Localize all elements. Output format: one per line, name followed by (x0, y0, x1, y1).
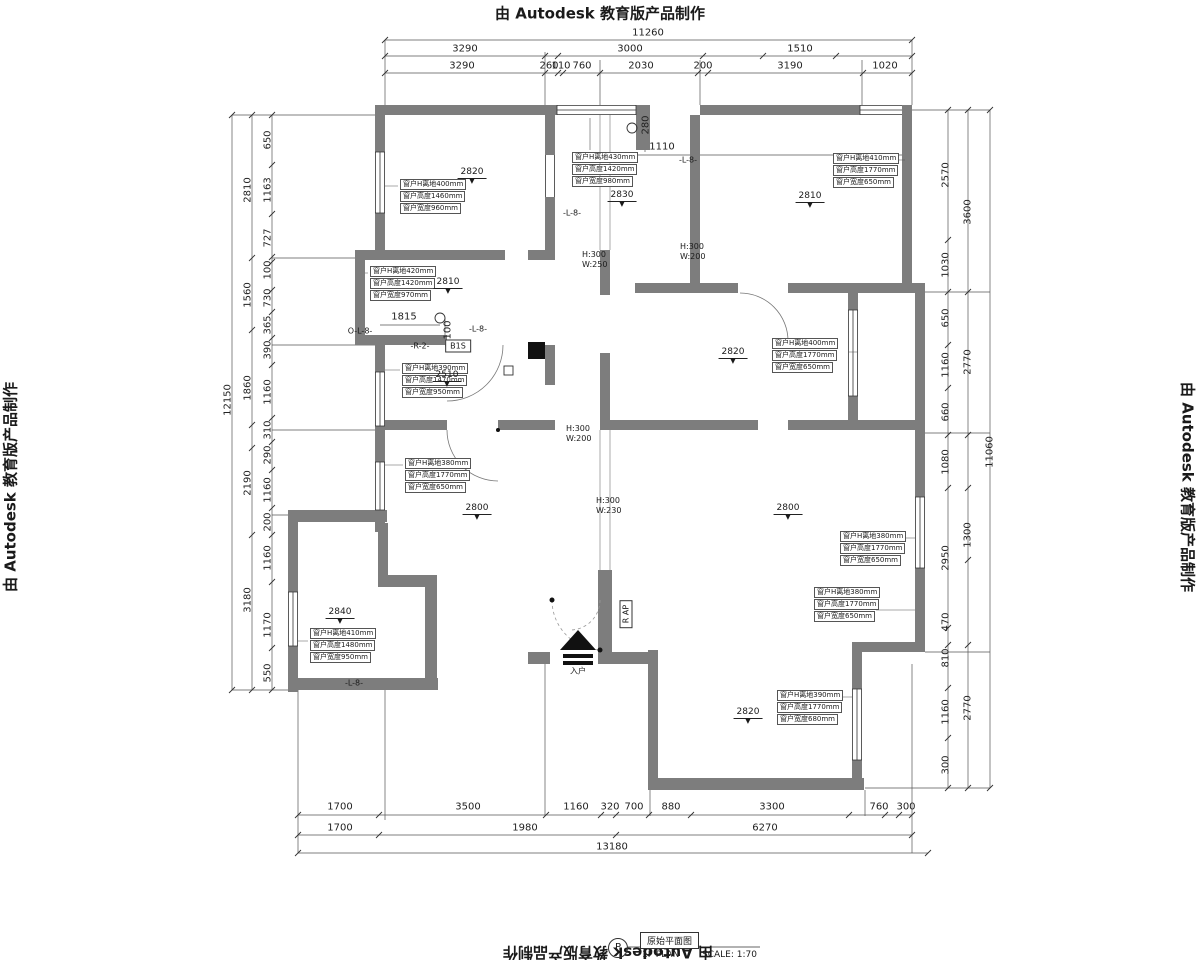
dimension-label: 2810 (243, 177, 254, 202)
title-block-symbol: P (608, 938, 628, 958)
dimension-label: 6270 (752, 823, 777, 834)
plan-tag: -R-2- (411, 342, 430, 351)
window-annotation-line: 窗户高度1770mm (840, 543, 905, 554)
window-annotation-line: 窗户宽度950mm (402, 387, 463, 398)
elevation-triangle-icon: ▼ (434, 288, 463, 295)
window-annotation: 窗户H离地380mm窗户高度1770mm窗户宽度650mm (814, 587, 880, 623)
dimension-label: 810 (941, 648, 952, 667)
dimension-label: 3290 (452, 44, 477, 55)
beam-note-line: H:300 (566, 424, 591, 434)
elevation-triangle-icon: ▼ (326, 618, 355, 625)
dimension-label: 3190 (777, 61, 802, 72)
elevation-marker: 2800▼ (774, 504, 803, 521)
dimension-label: 3500 (455, 802, 480, 813)
dimension-label: 730 (263, 288, 274, 307)
door-hinge-dots (445, 343, 603, 653)
elevation-triangle-icon: ▼ (433, 381, 462, 388)
window-annotation-line: 窗户宽度980mm (572, 176, 633, 187)
window-annotation-line: 窗户宽度950mm (310, 652, 371, 663)
dimension-label: 300 (941, 755, 952, 774)
window-annotation-line: 窗户H离地400mm (772, 338, 838, 349)
dimension-label: 1170 (263, 612, 274, 637)
dimension-label: 2030 (628, 61, 653, 72)
window-annotation-line: 窗户高度1770mm (772, 350, 837, 361)
window-annotation-line: 窗户高度1770mm (814, 599, 879, 610)
window-annotation-line: 窗户H离地380mm (814, 587, 880, 598)
window-annotation-line: 窗户H离地430mm (572, 152, 638, 163)
dimension-label: 3300 (759, 802, 784, 813)
floor-plan-page: 由 Autodesk 教育版产品制作 由 Autodesk 教育版产品制作 由 … (0, 0, 1200, 960)
plan-label: 1F PLAN (642, 950, 679, 960)
window-annotation: 窗户H离地390mm窗户高度1770mm窗户宽度680mm (777, 690, 843, 726)
window-annotation-line: 窗户宽度650mm (772, 362, 833, 373)
plan-tag: 入户 (570, 666, 586, 677)
dimension-label: 1160 (263, 545, 274, 570)
beam-note-line: H:300 (680, 242, 705, 252)
plan-tag: R AP (620, 600, 633, 628)
dimension-label: 320 (600, 802, 619, 813)
dimension-label: 12150 (223, 384, 234, 416)
dimension-label: 2770 (963, 695, 974, 720)
elevation-triangle-icon: ▼ (463, 514, 492, 521)
dimension-label: 1300 (963, 522, 974, 547)
window-annotation-line: 窗户宽度650mm (833, 177, 894, 188)
dimension-label: 390 (263, 340, 274, 359)
dimension-label: 3180 (243, 587, 254, 612)
elevation-marker: 2510▼ (433, 371, 462, 388)
window-annotation-line: 窗户高度1420mm (370, 278, 435, 289)
dimension-label: 3000 (617, 44, 642, 55)
window-annotation: 窗户H离地410mm窗户高度1770mm窗户宽度650mm (833, 153, 899, 189)
plan-tag: B1S (445, 340, 471, 353)
dimension-label: 880 (661, 802, 680, 813)
dimension-label: 1160 (263, 379, 274, 404)
window-annotation-line: 窗户宽度970mm (370, 290, 431, 301)
window-annotation-line: 窗户H离地410mm (833, 153, 899, 164)
window-annotation: 窗户H离地380mm窗户高度1770mm窗户宽度650mm (405, 458, 471, 494)
window-annotation-line: 窗户高度1480mm (310, 640, 375, 651)
plan-tag: -L-8- (563, 209, 581, 218)
plan-tag: -L-8- (469, 325, 487, 334)
window-annotation-line: 窗户H离地420mm (370, 266, 436, 277)
beam-note-line: H:300 (596, 496, 621, 506)
elevation-triangle-icon: ▼ (719, 358, 748, 365)
plan-drawing (0, 0, 1200, 960)
window-annotation-line: 窗户H离地380mm (405, 458, 471, 469)
dimension-label: 1163 (263, 177, 274, 202)
column (528, 342, 545, 359)
elevation-marker: 2820▼ (458, 168, 487, 185)
dimension-label: 727 (263, 228, 274, 247)
dimension-label: 470 (941, 612, 952, 631)
window-annotation-line: 窗户H离地380mm (840, 531, 906, 542)
elevation-marker: 2820▼ (734, 708, 763, 725)
dimension-label: 365 (263, 315, 274, 334)
window-annotation-line: 窗户H离地400mm (400, 179, 466, 190)
dimension-label: 1510 (787, 44, 812, 55)
elevation-marker: 2810▼ (434, 278, 463, 295)
dimension-label: 310 (263, 420, 274, 439)
elevation-marker: 2810▼ (796, 192, 825, 209)
dimension-label: 1080 (941, 449, 952, 474)
window-annotation-line: 窗户H离地390mm (777, 690, 843, 701)
dimension-label: 660 (941, 402, 952, 421)
dimension-label: 650 (941, 308, 952, 327)
dimension-label: 1160 (941, 352, 952, 377)
dimension-label: 1560 (243, 282, 254, 307)
autodesk-stamp-top: 由 Autodesk 教育版产品制作 (495, 3, 705, 24)
dimension-label: 290 (263, 445, 274, 464)
scale-label: SCALE: 1:70 (702, 950, 757, 960)
dimension-label: 760 (869, 802, 888, 813)
window-annotation-line: 窗户宽度650mm (814, 611, 875, 622)
window-annotation-line: 窗户宽度680mm (777, 714, 838, 725)
window-annotation-line: 窗户宽度960mm (400, 203, 461, 214)
elevation-marker: 2840▼ (326, 608, 355, 625)
dimension-label: 650 (263, 130, 274, 149)
dimension-label: 1815 (391, 312, 416, 323)
window-annotation: 窗户H离地400mm窗户高度1770mm窗户宽度650mm (772, 338, 838, 374)
entry-arrow-icon (560, 630, 596, 665)
window-annotation-line: 窗户H离地410mm (310, 628, 376, 639)
dimension-label: 1160 (563, 802, 588, 813)
elevation-triangle-icon: ▼ (796, 202, 825, 209)
dimension-label: 2950 (941, 545, 952, 570)
window-annotation: 窗户H离地420mm窗户高度1420mm窗户宽度970mm (370, 266, 436, 302)
elevation-marker: 2830▼ (608, 191, 637, 208)
beam-note: H:300W:230 (596, 496, 621, 515)
dimension-label: 110 (551, 61, 570, 72)
dimension-label: 1700 (327, 802, 352, 813)
dimension-label: 1860 (243, 375, 254, 400)
window-annotation: 窗户H离地380mm窗户高度1770mm窗户宽度650mm (840, 531, 906, 567)
beam-note-line: H:300 (582, 250, 607, 260)
dimension-label: 11260 (632, 28, 664, 39)
beam-note: H:300W:250 (582, 250, 607, 269)
dimension-label: 200 (693, 61, 712, 72)
window-annotation-line: 窗户高度1460mm (400, 191, 465, 202)
elevation-marker: 2820▼ (719, 348, 748, 365)
drawing-name: 原始平面图 (640, 932, 699, 949)
window-annotation-line: 窗户高度1770mm (405, 470, 470, 481)
dimension-label: 1700 (327, 823, 352, 834)
dimension-label: 100 (263, 260, 274, 279)
elevation-triangle-icon: ▼ (608, 201, 637, 208)
elevation-triangle-icon: ▼ (774, 514, 803, 521)
beam-note-line: W:230 (596, 506, 621, 516)
window-annotation: 窗户H离地410mm窗户高度1480mm窗户宽度950mm (310, 628, 376, 664)
plan-tag: -L-8- (679, 156, 697, 165)
window-annotation-line: 窗户高度1420mm (572, 164, 637, 175)
dimension-label: 13180 (596, 842, 628, 853)
elevation-marker: 2800▼ (463, 504, 492, 521)
dimension-label: 550 (263, 663, 274, 682)
dimension-label: 300 (896, 802, 915, 813)
dimension-label: 3290 (449, 61, 474, 72)
dimension-label: 100 (443, 320, 454, 339)
beam-note: H:300W:200 (680, 242, 705, 261)
dimension-label: 1160 (263, 477, 274, 502)
elevation-triangle-icon: ▼ (458, 178, 487, 185)
autodesk-stamp-left: 由 Autodesk 教育版产品制作 (0, 382, 21, 592)
beam-note-line: W:200 (680, 252, 705, 262)
window-annotation-line: 窗户高度1770mm (833, 165, 898, 176)
dimension-label: 1030 (941, 252, 952, 277)
dimension-label: 1110 (649, 142, 674, 153)
dimension-label: 700 (624, 802, 643, 813)
dimension-label: 760 (572, 61, 591, 72)
elevation-triangle-icon: ▼ (734, 718, 763, 725)
dimension-label: 2570 (941, 162, 952, 187)
dimension-label: 3600 (963, 199, 974, 224)
window-annotation: 窗户H离地400mm窗户高度1460mm窗户宽度960mm (400, 179, 466, 215)
dimension-label: 280 (641, 115, 652, 134)
dimension-label: 1160 (941, 699, 952, 724)
autodesk-stamp-right: 由 Autodesk 教育版产品制作 (1178, 382, 1199, 592)
window-annotation: 窗户H离地430mm窗户高度1420mm窗户宽度980mm (572, 152, 638, 188)
beam-note-line: W:200 (566, 434, 591, 444)
beam-note-line: W:250 (582, 260, 607, 270)
dimension-label: 1980 (512, 823, 537, 834)
dimension-label: 2770 (963, 349, 974, 374)
dimension-label: 200 (263, 512, 274, 531)
beam-note: H:300W:200 (566, 424, 591, 443)
plan-tag: -L-8- (345, 679, 363, 688)
dimension-label: 2190 (243, 470, 254, 495)
dimension-label: 1020 (872, 61, 897, 72)
window-annotation-line: 窗户宽度650mm (405, 482, 466, 493)
plan-tag: O-L-8- (348, 327, 373, 336)
window-annotation-line: 窗户高度1770mm (777, 702, 842, 713)
dimension-label: 11060 (985, 436, 996, 468)
window-annotation-line: 窗户宽度650mm (840, 555, 901, 566)
